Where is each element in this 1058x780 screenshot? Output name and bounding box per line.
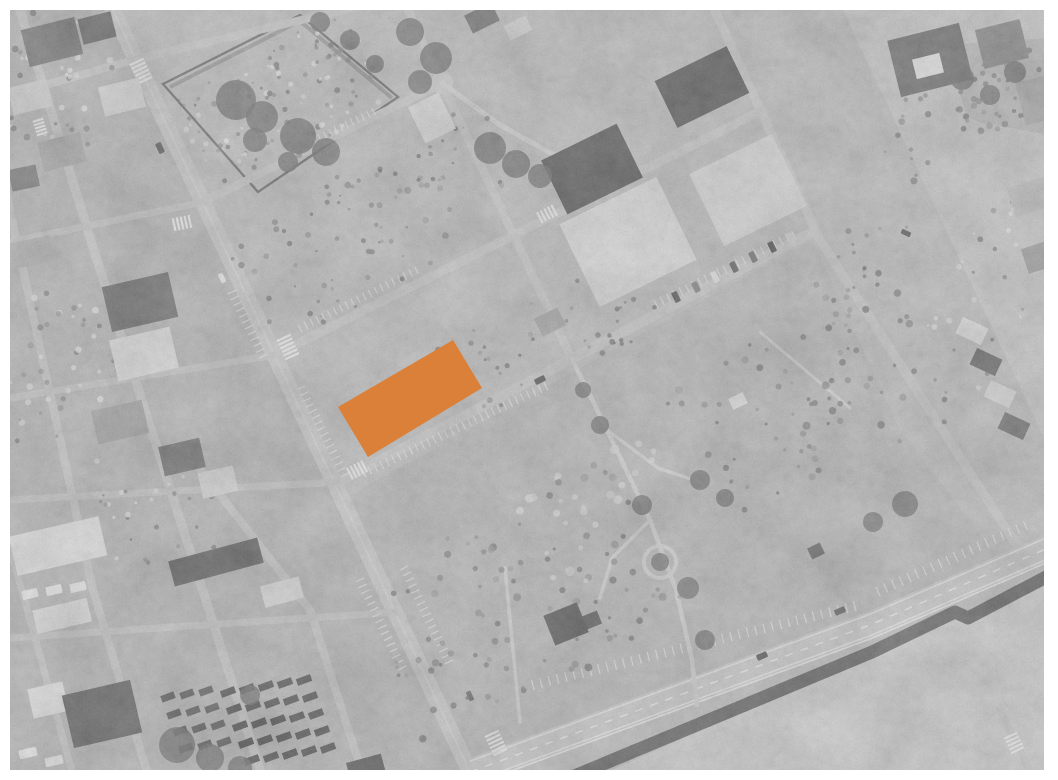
page-background [0, 0, 1058, 780]
aerial-photo-frame [10, 10, 1044, 770]
aerial-orthophoto-canvas[interactable] [10, 10, 1044, 770]
photo-grain [10, 10, 1044, 770]
